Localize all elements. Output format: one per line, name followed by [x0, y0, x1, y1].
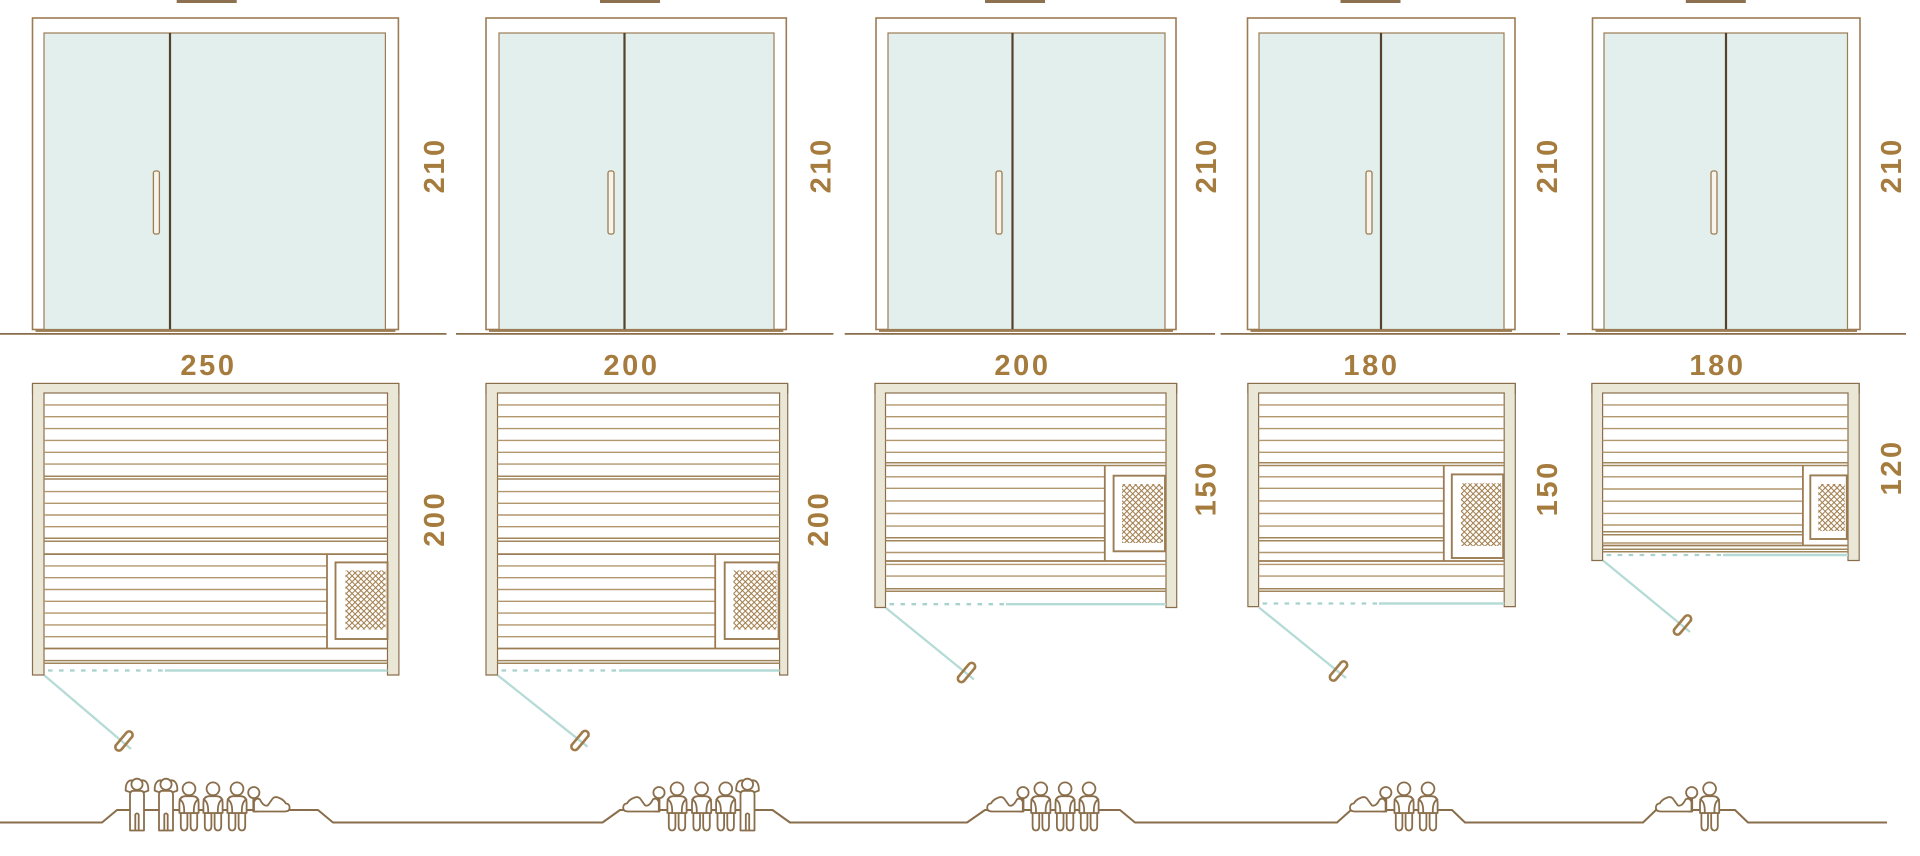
svg-text:200: 200 [419, 491, 451, 547]
svg-text:250: 250 [180, 350, 236, 382]
svg-text:210: 210 [1876, 137, 1908, 193]
svg-text:200: 200 [994, 350, 1050, 382]
svg-text:210: 210 [1191, 137, 1223, 193]
svg-text:200: 200 [603, 350, 659, 382]
svg-text:210: 210 [419, 137, 451, 193]
svg-text:180: 180 [1343, 350, 1399, 382]
svg-text:200: 200 [803, 491, 835, 547]
svg-text:150: 150 [1532, 460, 1564, 516]
svg-text:180: 180 [1689, 350, 1745, 382]
svg-text:210: 210 [805, 137, 837, 193]
svg-text:120: 120 [1876, 439, 1908, 495]
svg-text:210: 210 [1532, 137, 1564, 193]
svg-text:150: 150 [1190, 460, 1222, 516]
